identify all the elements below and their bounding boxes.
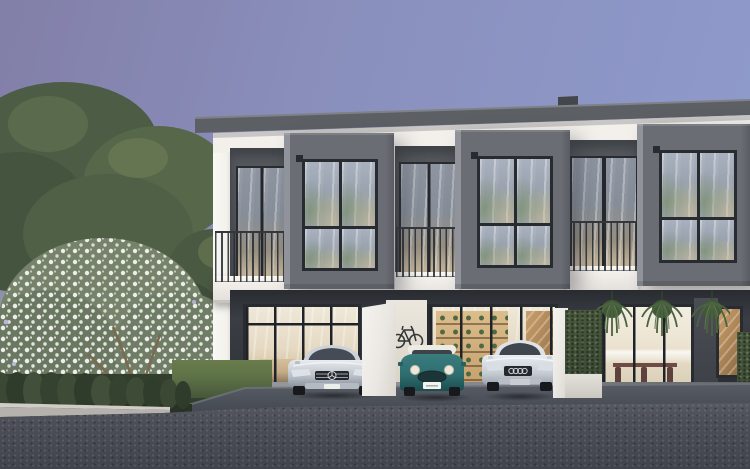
hedge-screen	[565, 310, 602, 374]
mini-headlight	[444, 365, 453, 374]
box-window-2	[477, 156, 553, 268]
glass-pane	[342, 162, 376, 226]
glass-pane	[305, 229, 339, 268]
fern	[642, 291, 682, 336]
partition-wall	[362, 302, 396, 396]
car-mini-cooper	[395, 343, 474, 400]
fern	[692, 291, 730, 336]
license-plate	[510, 379, 530, 385]
glass-pane	[342, 229, 376, 268]
glass-pane	[662, 153, 697, 217]
box-window-1	[302, 159, 378, 271]
glass-pane	[700, 220, 735, 260]
mini-headlight	[410, 365, 419, 374]
roof-notch	[558, 96, 578, 106]
planter-base	[565, 374, 602, 398]
balcony-railing-2	[396, 227, 458, 277]
glass-pane	[700, 153, 735, 217]
car-audi	[480, 337, 559, 398]
license-plate	[324, 384, 340, 389]
glass-pane	[480, 159, 514, 223]
townhouse-rendering	[0, 0, 750, 469]
box-window-3	[659, 150, 737, 263]
glass-pane	[517, 226, 551, 265]
balcony-railing-1	[215, 231, 287, 282]
glass-pane	[662, 220, 697, 260]
glass-pane	[517, 159, 551, 223]
planter-hedge	[565, 310, 602, 398]
glass-pane	[305, 162, 339, 226]
glass-pane	[480, 226, 514, 265]
mercedes-logo	[328, 372, 336, 380]
balcony-railing-3	[567, 221, 637, 271]
hanging-ferns	[596, 291, 730, 349]
